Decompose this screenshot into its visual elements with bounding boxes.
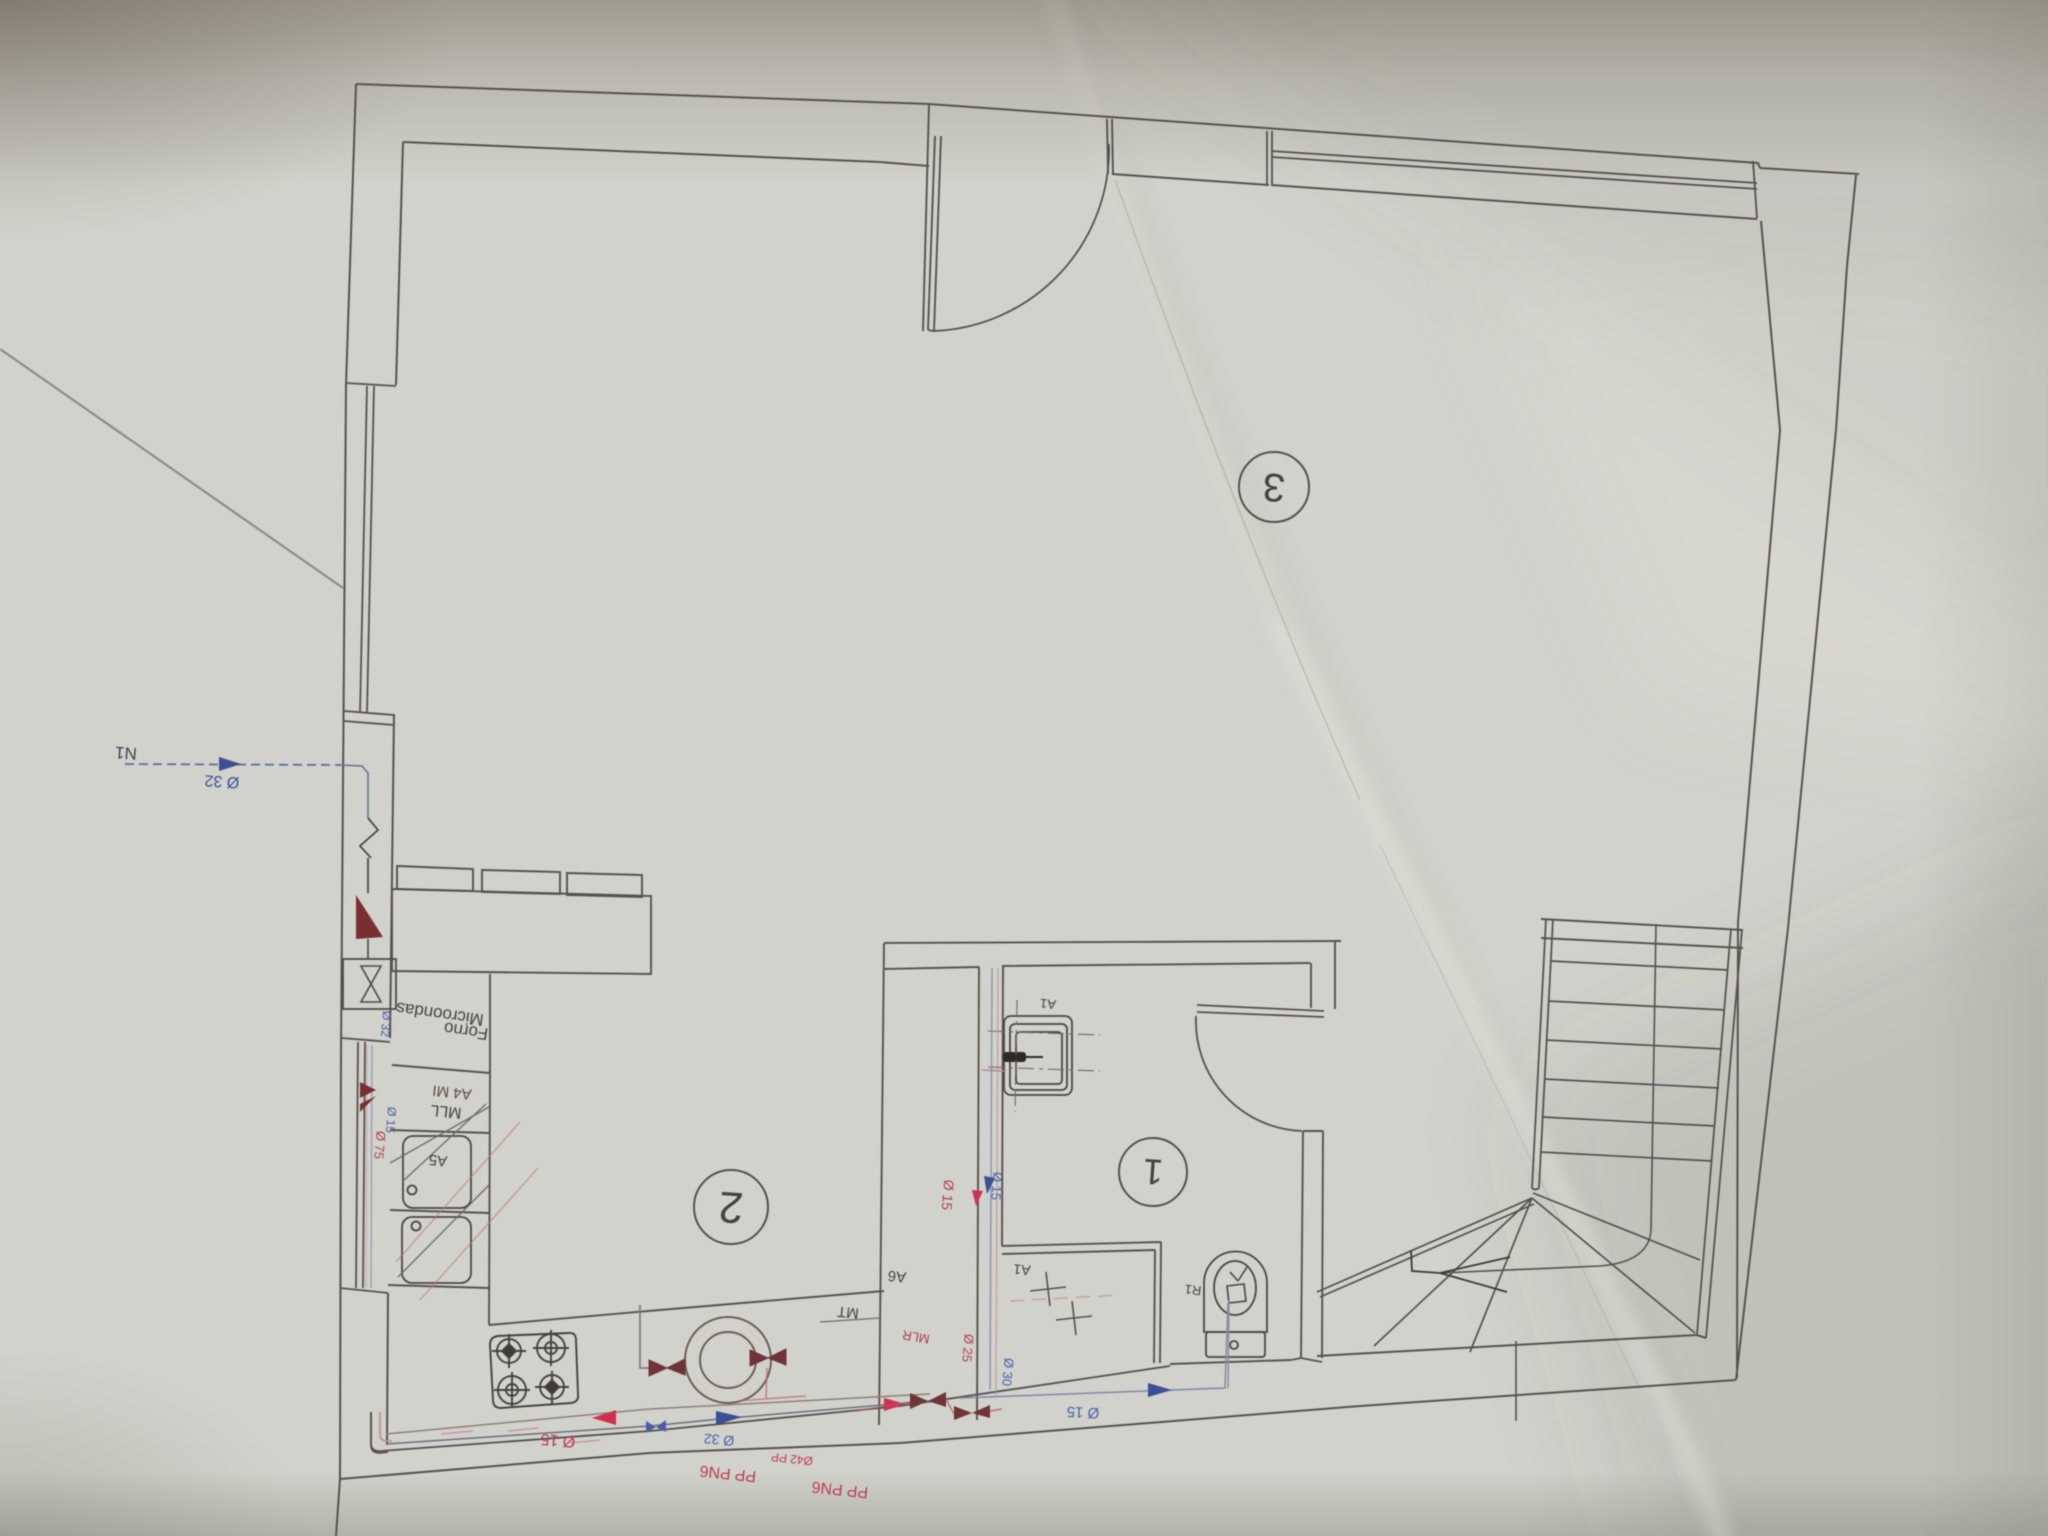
- svg-text:A1: A1: [1039, 996, 1056, 1013]
- svg-text:Ø 32: Ø 32: [378, 1010, 394, 1037]
- svg-text:N1: N1: [114, 743, 137, 763]
- svg-text:A4 MI: A4 MI: [432, 1081, 473, 1102]
- svg-text:R1: R1: [1184, 1282, 1202, 1299]
- svg-text:Ø 32: Ø 32: [204, 771, 240, 790]
- svg-text:3: 3: [1261, 464, 1286, 509]
- svg-text:Ø 15: Ø 15: [540, 1430, 576, 1450]
- svg-text:Ø 15: Ø 15: [1066, 1403, 1099, 1422]
- svg-text:MLL: MLL: [430, 1101, 463, 1121]
- svg-text:Ø 15: Ø 15: [988, 1171, 1005, 1200]
- svg-text:MT: MT: [836, 1302, 859, 1321]
- svg-text:PP PN6: PP PN6: [699, 1462, 757, 1485]
- svg-text:Ø 15: Ø 15: [939, 1179, 958, 1211]
- svg-text:MLR: MLR: [901, 1327, 931, 1347]
- svg-text:A6: A6: [887, 1267, 907, 1286]
- svg-text:Ø42 PP: Ø42 PP: [770, 1450, 813, 1468]
- svg-text:PP PN6: PP PN6: [811, 1478, 869, 1501]
- svg-text:Ø 30: Ø 30: [999, 1357, 1016, 1386]
- svg-text:Ø 32: Ø 32: [703, 1431, 735, 1450]
- svg-text:A1: A1: [1012, 1261, 1031, 1279]
- svg-text:1: 1: [1142, 1151, 1165, 1193]
- svg-text:A5: A5: [428, 1151, 448, 1170]
- svg-text:Ø 75: Ø 75: [371, 1130, 388, 1159]
- svg-text:2: 2: [717, 1182, 745, 1233]
- svg-text:Ø 15: Ø 15: [383, 1106, 399, 1133]
- svg-text:Ø 25: Ø 25: [959, 1333, 976, 1362]
